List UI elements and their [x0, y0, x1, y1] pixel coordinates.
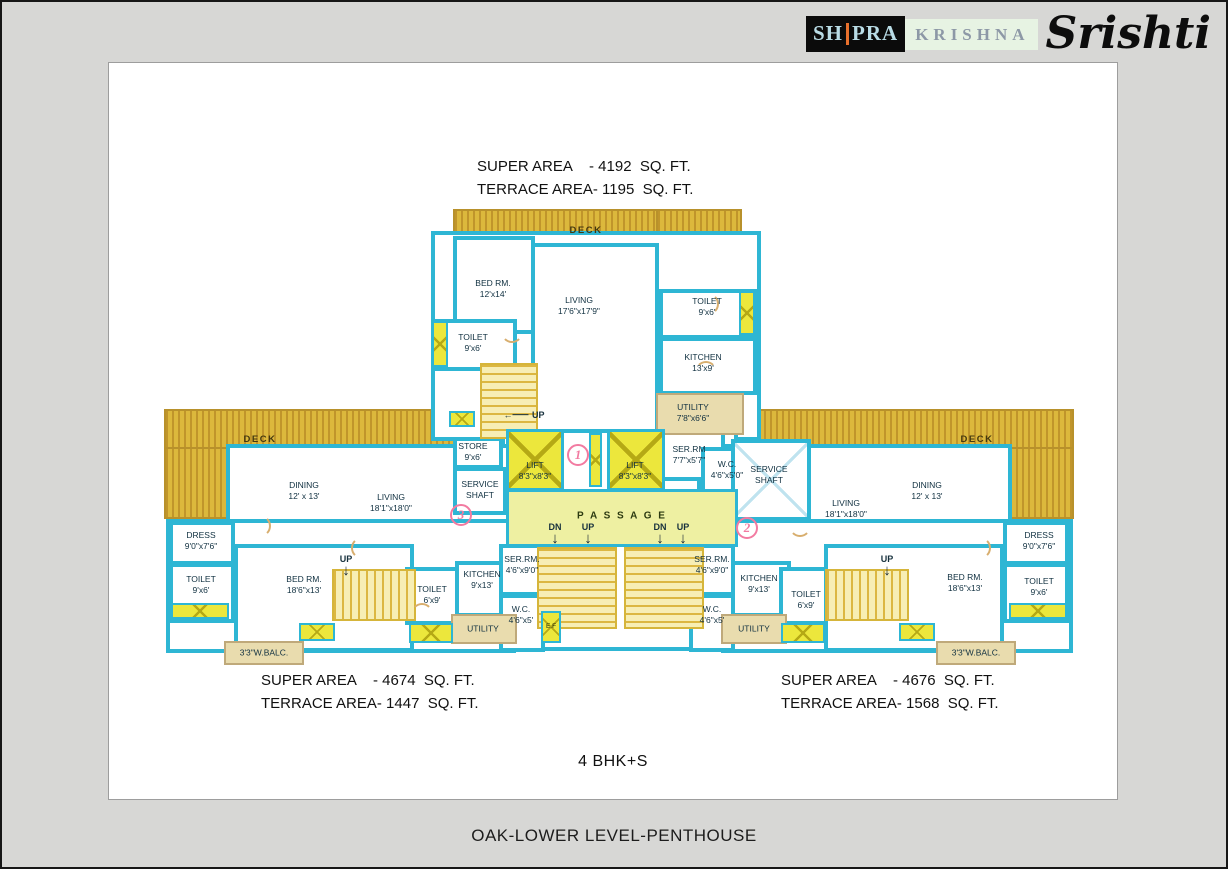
stair-up-marker-right-wing: UP↓: [881, 555, 894, 578]
service-shaft-right-label: SERVICESHAFT: [750, 464, 787, 486]
lift-2-label: LIFT8'3"x8'3": [619, 460, 651, 482]
store-label: STORE9'x6': [458, 441, 487, 463]
toilet-top-right-label: TOILET9'x6': [692, 296, 722, 318]
down-arrow-icon: ↓: [340, 564, 353, 578]
lift-duct: [589, 433, 602, 487]
room-name: KITCHEN: [463, 569, 500, 580]
door-arc: [789, 515, 811, 537]
room-name: W.C.: [700, 604, 725, 615]
room-name: LIFT: [619, 460, 651, 471]
up-arrow-top-stairs: ← UP: [503, 410, 544, 422]
room-dims: 9'x6': [692, 307, 722, 318]
room-name: DINING: [288, 480, 319, 491]
stair-up-marker: UP↓: [582, 523, 595, 546]
door-arc: [501, 321, 523, 343]
room-name: BED RM.: [475, 278, 510, 289]
super-area-row: SUPER AREA- 4192 SQ. FT.: [477, 155, 693, 178]
room-dims: 6'x9': [791, 600, 821, 611]
passage-label: P A S S A G E: [577, 510, 667, 523]
area-label: SUPER AREA: [781, 672, 893, 689]
balcony-marker: [781, 623, 825, 643]
room-name: LIVING: [370, 492, 412, 503]
room-name: DINING: [911, 480, 942, 491]
room-dims: 18'6"x13': [286, 585, 321, 596]
room-name: SER.RM.: [504, 554, 539, 565]
lift-1-label: LIFT8'3"x8'3": [519, 460, 551, 482]
room-dims: 8'3"x8'3": [619, 471, 651, 482]
down-arrow-icon: ↓: [549, 532, 562, 546]
room-name: BED RM.: [286, 574, 321, 585]
logo-divider-bar: [846, 23, 849, 45]
stair-dn-marker: DN↓: [654, 523, 667, 546]
stair-up-marker: UP↓: [677, 523, 690, 546]
room-name: DRESS: [1023, 530, 1055, 541]
room-dims: 4'6"x9'0": [504, 565, 539, 576]
down-arrow-icon: ↓: [654, 532, 667, 546]
kitchen-right-label: KITCHEN9'x13': [740, 573, 777, 595]
kitchen-left-label: KITCHEN9'x13': [463, 569, 500, 591]
krishna-logo: KRISHNA: [905, 19, 1037, 50]
room-name: TOILET: [186, 574, 216, 585]
dining-left-label: DINING12' x 13': [288, 480, 319, 502]
shipra-logo: SHPRA: [806, 16, 905, 52]
room-name: LIFT: [519, 460, 551, 471]
down-arrow-icon: ↓: [582, 532, 595, 546]
electrical-fitting-label: E.F: [546, 623, 556, 631]
plan-type-label: 4 BHK+S: [109, 753, 1117, 771]
room-dims: SHAFT: [750, 475, 787, 486]
room-dims: 18'1"x18'0": [370, 503, 412, 514]
room-dims: 13'x9': [684, 363, 721, 374]
utility-top-label: UTILITY7'8"x6'6": [677, 402, 709, 424]
shipra-right: PRA: [852, 21, 898, 46]
room-name: TOILET: [1024, 576, 1054, 587]
toilet-top-left-label: TOILET9'x6': [458, 332, 488, 354]
staircase-top: [480, 363, 538, 439]
room-dims: 12'x14': [475, 289, 510, 300]
door-arc: [249, 515, 271, 537]
room-dims: 12' x 13': [288, 491, 319, 502]
room-living-top: [531, 243, 659, 433]
living-top-label: LIVING17'6"x17'9": [558, 295, 600, 317]
terrace-area-row: TERRACE AREA- 1195 SQ. FT.: [477, 178, 693, 201]
room-dims: 6'x9': [417, 595, 447, 606]
down-arrow-icon: ↓: [677, 532, 690, 546]
area-label: SUPER AREA: [261, 672, 373, 689]
room-name: STORE: [458, 441, 487, 452]
room-dims: 9'0"x7'6": [185, 541, 217, 552]
balcony-marker: [432, 321, 448, 367]
duct-box: [449, 411, 475, 427]
balcony-marker: [299, 623, 335, 641]
page: { "logo": {"part1":"SH","part2":"PRA","p…: [0, 0, 1228, 869]
room-name: TOILET: [417, 584, 447, 595]
room-name: DRESS: [185, 530, 217, 541]
area-label: TERRACE AREA: [477, 181, 593, 198]
room-name: SERVICE: [750, 464, 787, 475]
stair-dn-marker: DN↓: [549, 523, 562, 546]
balcony-marker: [739, 291, 755, 335]
area-label: TERRACE AREA: [261, 695, 377, 712]
wc-top-label: W.C.4'6"x5'0": [711, 459, 743, 481]
up-text: UP: [532, 410, 545, 420]
stair-up-marker-left-wing: UP↓: [340, 555, 353, 578]
room-name: W.C.: [509, 604, 534, 615]
kitchen-top-label: KITCHEN13'x9': [684, 352, 721, 374]
service-room-left-label: SER.RM.4'6"x9'0": [504, 554, 539, 576]
bedroom-right-label: BED RM.18'6"x13': [947, 572, 982, 594]
room-dims: 9'0"x7'6": [1023, 541, 1055, 552]
room-dims: 9'x6': [186, 585, 216, 596]
living-right-label: LIVING18'1"x18'0": [825, 498, 867, 520]
terrace-area-row: TERRACE AREA- 1447 SQ. FT.: [261, 692, 479, 715]
room-dims: 4'6"x5': [509, 615, 534, 626]
area-value: - 4192 SQ. FT.: [589, 158, 691, 175]
unit-marker-2: 2: [736, 517, 758, 539]
area-label: SUPER AREA: [477, 158, 589, 175]
deck-top-label: DECK: [570, 225, 603, 237]
service-room-top-label: SER.RM7'7"x5'7": [672, 444, 705, 466]
toilet-far-right-label: TOILET9'x6': [1024, 576, 1054, 598]
super-area-row: SUPER AREA- 4676 SQ. FT.: [781, 669, 999, 692]
dining-right-label: DINING12' x 13': [911, 480, 942, 502]
super-area-row: SUPER AREA- 4674 SQ. FT.: [261, 669, 479, 692]
staircase-bottom-right: [624, 547, 704, 629]
dress-left-label: DRESS9'0"x7'6": [185, 530, 217, 552]
room-dims: 18'6"x13': [947, 583, 982, 594]
balcony-marker: [409, 623, 453, 643]
walk-balcony-left-label: 3'3"W.BALC.: [240, 647, 289, 658]
unit-marker-3: 3: [450, 504, 472, 526]
room-dims: 4'6"x5': [700, 615, 725, 626]
room-dims: 9'x13': [740, 584, 777, 595]
service-shaft-left-label: SERVICESHAFT: [461, 479, 498, 501]
area-value: - 4676 SQ. FT.: [893, 672, 995, 689]
room-dims: 9'x6': [1024, 587, 1054, 598]
walk-balcony-right-label: 3'3"W.BALC.: [952, 647, 1001, 658]
room-name: LIVING: [825, 498, 867, 509]
room-name: KITCHEN: [740, 573, 777, 584]
room-name: SER.RM: [672, 444, 705, 455]
shipra-left: SH: [813, 21, 843, 46]
room-dims: 12' x 13': [911, 491, 942, 502]
room-name: BED RM.: [947, 572, 982, 583]
terrace-area-row: TERRACE AREA- 1568 SQ. FT.: [781, 692, 999, 715]
room-name: UTILITY: [677, 402, 709, 413]
down-arrow-icon: ↓: [881, 564, 894, 578]
bedroom-top-label: BED RM.12'x14': [475, 278, 510, 300]
top-unit-area-text: SUPER AREA- 4192 SQ. FT. TERRACE AREA- 1…: [477, 155, 693, 201]
utility-left-label: UTILITY: [467, 623, 499, 634]
room-dims: 4'6"x9'0": [694, 565, 729, 576]
room-dims: 18'1"x18'0": [825, 509, 867, 520]
area-label: TERRACE AREA: [781, 695, 897, 712]
room-dims: 4'6"x5'0": [711, 470, 743, 481]
staircase-right-wing: [825, 569, 909, 621]
room-name: W.C.: [711, 459, 743, 470]
wc-right-label: W.C.4'6"x5': [700, 604, 725, 626]
door-arc: [351, 537, 373, 559]
right-unit-area-text: SUPER AREA- 4676 SQ. FT. TERRACE AREA- 1…: [781, 669, 999, 715]
door-arc: [411, 603, 433, 625]
room-name: TOILET: [692, 296, 722, 307]
toilet-far-left-label: TOILET9'x6': [186, 574, 216, 596]
room-dims: SHAFT: [461, 490, 498, 501]
balcony-marker: [899, 623, 935, 641]
brand-logo: SHPRA KRISHNA Srishti: [806, 12, 1211, 56]
room-dims: 9'x6': [458, 343, 488, 354]
left-unit-area-text: SUPER AREA- 4674 SQ. FT. TERRACE AREA- 1…: [261, 669, 479, 715]
area-value: - 1568 SQ. FT.: [897, 695, 999, 712]
utility-right-label: UTILITY: [738, 623, 770, 634]
srishti-logo: Srishti: [1046, 12, 1211, 56]
living-left-label: LIVING18'1"x18'0": [370, 492, 412, 514]
arrow-tail: [512, 414, 528, 416]
room-name: SERVICE: [461, 479, 498, 490]
balcony-marker: [171, 603, 229, 619]
room-dims: 9'x6': [458, 452, 487, 463]
room-dims: 9'x13': [463, 580, 500, 591]
room-dims: 7'7"x5'7": [672, 455, 705, 466]
room-name: LIVING: [558, 295, 600, 306]
area-value: - 4674 SQ. FT.: [373, 672, 475, 689]
dress-right-label: DRESS9'0"x7'6": [1023, 530, 1055, 552]
room-name: TOILET: [791, 589, 821, 600]
wc-left-label: W.C.4'6"x5': [509, 604, 534, 626]
toilet-mid-left-label: TOILET6'x9': [417, 584, 447, 606]
room-name: KITCHEN: [684, 352, 721, 363]
bedroom-left-label: BED RM.18'6"x13': [286, 574, 321, 596]
deck-right-label: DECK: [961, 434, 994, 446]
floorplan-panel: SUPER AREA- 4192 SQ. FT. TERRACE AREA- 1…: [108, 62, 1118, 800]
page-title: OAK-LOWER LEVEL-PENTHOUSE: [0, 826, 1228, 846]
area-value: - 1195 SQ. FT.: [593, 181, 694, 198]
deck-left-label: DECK: [244, 434, 277, 446]
room-name: TOILET: [458, 332, 488, 343]
room-dims: 8'3"x8'3": [519, 471, 551, 482]
area-value: - 1447 SQ. FT.: [377, 695, 479, 712]
unit-marker-1: 1: [567, 444, 589, 466]
toilet-mid-right-label: TOILET6'x9': [791, 589, 821, 611]
service-room-right-label: SER.RM.4'6"x9'0": [694, 554, 729, 576]
room-dims: 17'6"x17'9": [558, 306, 600, 317]
room-name: SER.RM.: [694, 554, 729, 565]
door-arc: [969, 537, 991, 559]
balcony-marker: [1009, 603, 1067, 619]
left-arrow-icon: ←: [503, 410, 512, 420]
room-dims: 7'8"x6'6": [677, 413, 709, 424]
